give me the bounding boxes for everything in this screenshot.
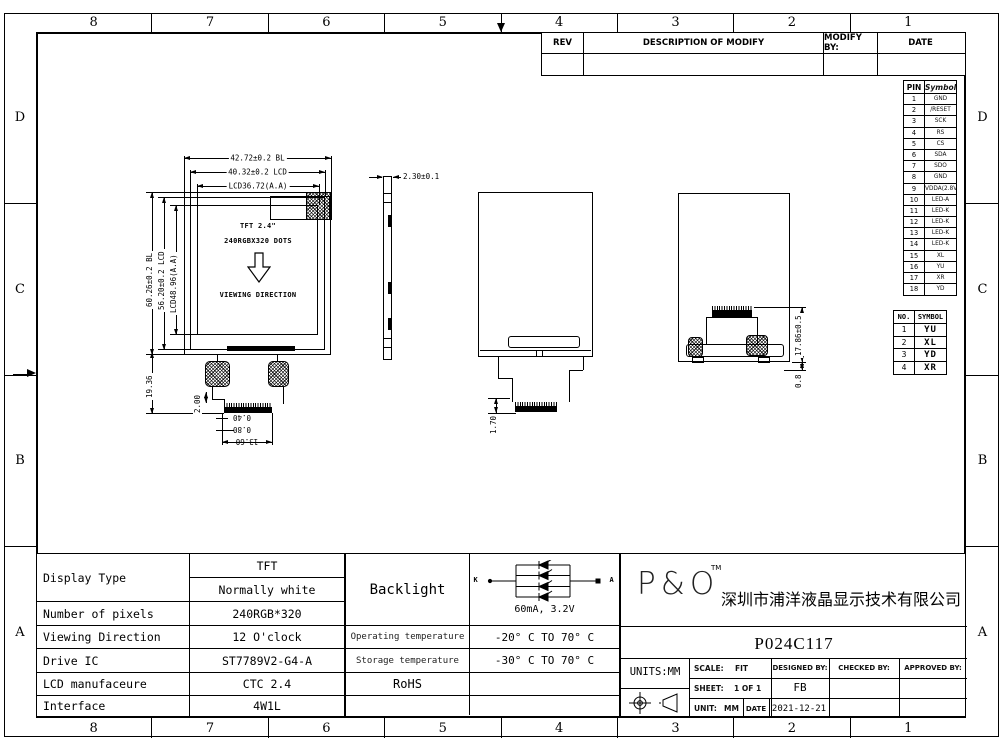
connector-body <box>515 406 557 412</box>
lcd-contact-strip <box>227 346 295 351</box>
dim-label: 2.30±0.1 <box>403 172 439 181</box>
op-temp-value: -20° C TO 70° C <box>470 626 619 648</box>
dim-line-width-bl: 42.72±0.2 BL <box>184 158 331 159</box>
cathode-label: K <box>474 576 478 584</box>
part-number: P024C117 <box>621 634 967 654</box>
center-mark-left-arrow-icon <box>27 369 36 377</box>
terminal-row: 2 XL <box>894 337 946 350</box>
fpc-edge <box>217 355 218 362</box>
spec-label: Viewing Direction <box>37 626 190 648</box>
grid-row-label: A <box>4 547 36 718</box>
adhesive-pad-left <box>688 337 703 357</box>
grid-col-label: 2 <box>734 13 850 32</box>
company-logo: P&O <box>637 566 719 602</box>
grid-col-label: 4 <box>502 718 618 738</box>
grid-col-label: 8 <box>36 718 152 738</box>
terminal-symbol: YD <box>915 349 946 361</box>
fpc-edge <box>498 357 499 378</box>
grid-ref-right: DCBA <box>966 32 999 718</box>
date-value: 2021-12-21 <box>769 704 829 714</box>
sheet-label: SHEET: <box>694 684 724 693</box>
unit-value: MM <box>724 704 739 713</box>
pin-row: 6 SDA <box>904 150 956 161</box>
dim-line-fpc-step <box>206 392 207 403</box>
terminal-symbol: XL <box>915 337 946 349</box>
arrow-icon <box>377 175 383 179</box>
dim-label: 56.20±0.2 LCD <box>157 249 166 312</box>
pin-number: 4 <box>904 128 925 138</box>
scale-label: SCALE: <box>694 664 724 673</box>
approved-by-label: APPROVED BY: <box>899 664 967 672</box>
terminal-table-body: 1 YU 2 XL 3 YD 4 XR <box>894 324 946 374</box>
dim-label: 13.60 <box>233 437 261 446</box>
pin-row: 10 LED-A <box>904 195 956 206</box>
pin-row: 11 LED-K <box>904 206 956 217</box>
grid-col-label: 5 <box>385 13 501 32</box>
spec-value: CTC 2.4 <box>190 673 344 695</box>
spec-row-manufacture: LCD manufaceure CTC 2.4 <box>37 673 344 696</box>
pin-number: 15 <box>904 251 925 261</box>
pin-row: 15 XL <box>904 251 956 262</box>
back-view-tab <box>758 357 770 363</box>
dim-label: LCD48.96(A.A) <box>169 252 178 315</box>
dim-label: 42.72±0.2 BL <box>228 154 286 163</box>
pin-symbol: YU <box>925 262 956 272</box>
terminal-row: 4 XR <box>894 362 946 375</box>
spec-value: 240RGB*320 <box>190 602 344 625</box>
pin-number: 12 <box>904 217 925 227</box>
company-name: 深圳市浦洋液晶显示技术有限公司 <box>721 586 961 610</box>
env-table: Backlight K A <box>345 553 620 717</box>
pin-symbol: GND <box>925 94 956 104</box>
module-label-line2: 240RGBX320 DOTS <box>199 237 317 245</box>
sheet-value: 1 OF 1 <box>734 684 761 693</box>
grid-col-label: 8 <box>36 13 152 32</box>
pin-symbol: /RESET <box>925 105 956 115</box>
pin-row: 9 VDDA(2.8V) <box>904 184 956 195</box>
pin-symbol: SDO <box>925 161 956 171</box>
pin-row: 16 YU <box>904 262 956 273</box>
grid-row-label: C <box>4 204 36 376</box>
pin-number: 13 <box>904 228 925 238</box>
fpc-edge <box>569 370 570 402</box>
revision-header-row: REV DESCRIPTION OF MODIFY MODIFY BY: DAT… <box>542 33 965 54</box>
pin-number: 7 <box>904 161 925 171</box>
center-mark-top-arrow-icon <box>497 23 505 32</box>
terminal-table: NO. SYMBOL 1 YU 2 XL 3 YD <box>893 310 947 375</box>
pin-number: 16 <box>904 262 925 272</box>
rev-header: REV <box>542 33 584 53</box>
extension-line <box>325 170 326 197</box>
grid-row-label: B <box>966 376 999 548</box>
symbol-header: Symbol <box>925 81 956 93</box>
title-block: P&O TM 深圳市浦洋液晶显示技术有限公司 P024C117 UNITS:MM… <box>620 553 966 717</box>
grid-col-label: 3 <box>618 13 734 32</box>
extension-line <box>784 370 806 371</box>
side-view-tape <box>388 282 392 294</box>
anode-label: A <box>610 576 614 584</box>
dim-label: 17.86±0.5 <box>794 313 803 358</box>
pin-row: 1 GND <box>904 94 956 105</box>
leader-line <box>216 418 228 419</box>
rohs-label: RoHS <box>346 673 470 695</box>
extension-line <box>754 307 806 308</box>
side-view-tape <box>388 215 392 227</box>
grid-col-label: 6 <box>269 718 385 738</box>
spec-row-viewing: Viewing Direction 12 O'clock <box>37 626 344 649</box>
terminal-row: 3 YD <box>894 349 946 362</box>
pin-symbol: SDA <box>925 150 956 160</box>
center-mark-left-line <box>13 374 28 375</box>
fpc-edge <box>512 378 513 402</box>
pin-number: 14 <box>904 239 925 249</box>
extension-line <box>190 170 191 197</box>
spec-row-pixels: Number of pixels 240RGB*320 <box>37 602 344 626</box>
adhesive-pad-left <box>205 361 230 387</box>
title-line <box>689 658 690 718</box>
extension-line <box>184 156 185 192</box>
pin-table-header: PIN Symbol <box>904 81 956 94</box>
env-row-empty <box>346 696 619 715</box>
grid-col-label: 4 <box>502 13 618 32</box>
dim-label: LCD36.72(A.A) <box>227 182 290 191</box>
pin-symbol: GND <box>925 172 956 182</box>
pin-number: 6 <box>904 150 925 160</box>
pin-symbol: YD <box>925 284 956 295</box>
symbol-header: SYMBOL <box>915 311 946 323</box>
unit-label: UNIT: <box>694 704 717 713</box>
pin-symbol: CS <box>925 139 956 149</box>
grid-col-label: 5 <box>385 718 501 738</box>
pin-number: 5 <box>904 139 925 149</box>
pin-row: 12 LED-K <box>904 217 956 228</box>
no-header: NO. <box>894 311 915 323</box>
description-header: DESCRIPTION OF MODIFY <box>584 33 824 53</box>
spec-label: LCD manufaceure <box>37 673 190 695</box>
spec-value: Normally white <box>190 578 344 601</box>
side-view-layer-line <box>383 193 392 194</box>
pin-number: 18 <box>904 284 925 295</box>
pin-row: 17 XR <box>904 273 956 284</box>
dim-label: 60.26±0.2 BL <box>145 251 154 309</box>
pin-row: 14 LED-K <box>904 239 956 250</box>
adhesive-pad-right <box>268 361 289 387</box>
pin-header: PIN <box>904 81 925 93</box>
fpc-edge <box>283 387 284 404</box>
pin-number: 9 <box>904 184 925 194</box>
terminal-symbol: YU <box>915 324 946 336</box>
grid-col-label: 2 <box>734 718 850 738</box>
st-temp-label: Storage temperature <box>346 649 470 672</box>
env-row-rohs: RoHS <box>346 673 619 696</box>
fpc-edge <box>498 378 512 379</box>
dim-label: 40.32±0.2 LCD <box>226 168 289 177</box>
fpc-edge <box>277 355 278 362</box>
pin-symbol: RS <box>925 128 956 138</box>
title-line <box>689 698 967 699</box>
date-header: DATE <box>878 33 963 53</box>
terminal-number: 2 <box>894 337 915 349</box>
pin-row: 5 CS <box>904 139 956 150</box>
spec-row-drive-ic: Drive IC ST7789V2-G4-A <box>37 649 344 673</box>
pin-number: 10 <box>904 195 925 205</box>
spec-value: 4W1L <box>190 696 344 716</box>
engineering-drawing-sheet: 87654321 87654321 DCBA DCBA REV DESCRIPT… <box>0 0 1008 750</box>
spec-value: TFT <box>190 554 344 578</box>
grid-row-label: A <box>966 547 999 718</box>
pin-symbol: LED-K <box>925 206 956 216</box>
arrow-icon <box>393 175 399 179</box>
side-view-layer-line <box>383 202 392 203</box>
grid-row-label: D <box>4 32 36 204</box>
pin-number: 11 <box>904 206 925 216</box>
pin-row: 4 RS <box>904 128 956 139</box>
terminal-number: 4 <box>894 362 915 375</box>
revision-table: REV DESCRIPTION OF MODIFY MODIFY BY: DAT… <box>541 32 966 76</box>
grid-col-label: 7 <box>152 718 268 738</box>
grid-row-label: C <box>966 204 999 376</box>
fpc-edge <box>212 387 213 399</box>
pin-number: 2 <box>904 105 925 115</box>
spec-value: ST7789V2-G4-A <box>190 649 344 672</box>
grid-row-label: D <box>966 32 999 204</box>
title-line <box>689 678 967 679</box>
backlight-circuit: K A <box>472 560 618 602</box>
pin-symbol: LED-A <box>925 195 956 205</box>
env-row-operating: Operating temperature -20° C TO 70° C <box>346 626 619 649</box>
pin-row: 3 SCK <box>904 116 956 127</box>
fpc-edge <box>212 399 224 400</box>
grid-col-label: 3 <box>618 718 734 738</box>
projection-symbol-icon <box>629 691 683 715</box>
pin-symbol: XL <box>925 251 956 261</box>
middle-view-line <box>542 350 543 357</box>
middle-view-outline <box>478 192 593 357</box>
side-view-layer-line <box>383 347 392 348</box>
pin-row: 13 LED-K <box>904 228 956 239</box>
middle-view-shelf <box>508 336 580 348</box>
pin-symbol: SCK <box>925 116 956 126</box>
extension-line <box>488 398 510 399</box>
env-row-backlight: Backlight K A <box>346 554 619 626</box>
viewing-direction-arrow-icon <box>247 252 271 284</box>
extension-line <box>319 184 320 205</box>
terminal-symbol: XR <box>915 362 946 375</box>
title-line <box>621 658 967 659</box>
title-line <box>621 626 967 627</box>
dim-line-width-lcd: 40.32±0.2 LCD <box>190 172 325 173</box>
extension-line <box>146 413 224 414</box>
pin-number: 1 <box>904 94 925 104</box>
grid-row-label: B <box>4 376 36 548</box>
dim-label: 19.36 <box>145 373 154 400</box>
scale-value: FIT <box>735 664 748 673</box>
spec-label: Interface <box>37 696 190 716</box>
dim-label: 1.70 <box>489 414 498 436</box>
side-view-tape <box>388 318 392 330</box>
pin-symbol: LED-K <box>925 228 956 238</box>
revision-empty-row <box>542 54 965 75</box>
checked-by-label: CHECKED BY: <box>829 664 899 672</box>
spec-label: Drive IC <box>37 649 190 672</box>
spec-row-interface: Interface 4W1L <box>37 696 344 716</box>
pin-number: 3 <box>904 116 925 126</box>
side-view-outline <box>383 176 392 360</box>
fpc-edge <box>583 357 584 370</box>
title-line <box>621 688 689 689</box>
pin-symbol: LED-K <box>925 217 956 227</box>
dim-label: 2.00 <box>193 393 202 415</box>
dim-line-width-aa: LCD36.72(A.A) <box>197 186 319 187</box>
pin-symbol: LED-K <box>925 239 956 249</box>
module-label-line1: TFT 2.4" <box>199 222 317 230</box>
extension-line <box>331 156 332 192</box>
pin-symbol: XR <box>925 273 956 283</box>
pin-row: 18 YD <box>904 284 956 295</box>
back-view-tab <box>692 357 704 363</box>
spec-value: 12 O'clock <box>190 626 344 648</box>
terminal-row: 1 YU <box>894 324 946 337</box>
dim-label: 0.40 <box>230 413 254 422</box>
backlight-label: Backlight <box>346 554 470 625</box>
env-row-storage: Storage temperature -30° C TO 70° C <box>346 649 619 673</box>
terminal-table-header: NO. SYMBOL <box>894 311 946 324</box>
st-temp-value: -30° C TO 70° C <box>470 649 619 672</box>
designed-by-label: DESIGNED BY: <box>771 664 829 672</box>
center-mark-bottom-line <box>501 717 502 738</box>
pin-number: 17 <box>904 273 925 283</box>
connector-body <box>712 310 752 317</box>
trademark-mark: TM <box>711 564 721 572</box>
spec-table: Display Type TFT Normally white Number o… <box>36 553 345 717</box>
dim-line-offset <box>802 362 803 370</box>
pin-number: 8 <box>904 172 925 182</box>
middle-view-line <box>536 350 537 357</box>
backlight-rating: 60mA, 3.2V <box>514 604 574 615</box>
led-circuit-icon <box>482 560 608 602</box>
pin-table: PIN Symbol 1 GND 2 /RESET 3 SCK <box>903 80 957 296</box>
grid-col-label: 1 <box>851 718 966 738</box>
dim-label: 0.8 <box>794 372 803 390</box>
spec-label: Number of pixels <box>37 602 190 625</box>
fpc-edge <box>569 370 583 371</box>
terminal-number: 1 <box>894 324 915 336</box>
side-view-layer-line <box>383 338 392 339</box>
pin-symbol: VDDA(2.8V) <box>925 184 956 194</box>
units-label: UNITS:MM <box>621 666 689 678</box>
pin-row: 7 SDO <box>904 161 956 172</box>
grid-col-label: 6 <box>269 13 385 32</box>
module-label-line3: VIEWING DIRECTION <box>199 291 317 299</box>
spec-row-display-type: Display Type TFT Normally white <box>37 554 344 602</box>
dim-line-fpc <box>496 398 497 413</box>
adhesive-pad-right <box>746 335 768 356</box>
pin-row: 2 /RESET <box>904 105 956 116</box>
dim-label: 0.80 <box>230 425 254 434</box>
pin-table-body: 1 GND 2 /RESET 3 SCK 4 RS <box>904 94 956 295</box>
grid-col-label: 7 <box>152 13 268 32</box>
modify-by-header: MODIFY BY: <box>824 33 878 53</box>
designed-by-value: FB <box>771 681 829 694</box>
pin-row: 8 GND <box>904 172 956 183</box>
op-temp-label: Operating temperature <box>346 626 470 648</box>
spec-label: Display Type <box>37 554 190 601</box>
grid-col-label: 1 <box>851 13 966 32</box>
date-label: DATE <box>743 705 769 713</box>
terminal-number: 3 <box>894 349 915 361</box>
extension-line <box>272 413 273 445</box>
